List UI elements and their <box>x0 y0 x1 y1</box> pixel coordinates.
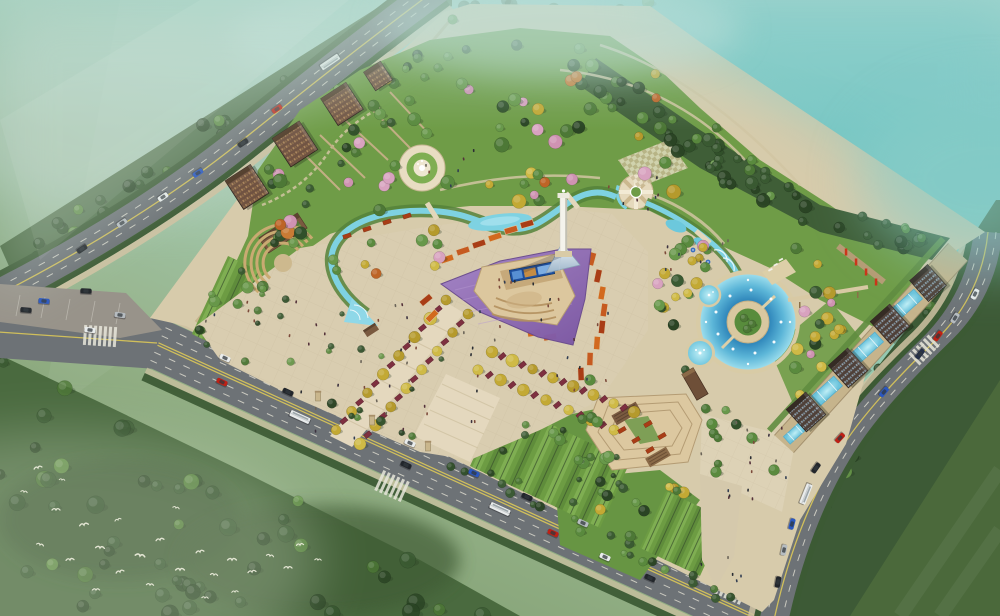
rendering-stage: Bird's-eye rendering of a large rectangu… <box>0 0 1000 616</box>
person <box>670 268 672 271</box>
person <box>586 378 588 381</box>
person <box>473 149 475 152</box>
person <box>377 319 379 322</box>
flower-bed <box>578 367 584 380</box>
person <box>415 346 417 349</box>
person <box>667 245 669 248</box>
person <box>474 420 476 423</box>
person <box>324 332 326 335</box>
person <box>700 260 702 263</box>
person <box>471 420 473 423</box>
person <box>750 456 752 459</box>
person <box>472 346 474 349</box>
person <box>752 497 754 500</box>
person <box>727 556 729 559</box>
person <box>740 574 742 577</box>
person <box>253 319 255 322</box>
person <box>476 389 478 392</box>
person <box>722 242 724 245</box>
flower-bed <box>594 336 601 349</box>
person <box>315 430 317 433</box>
person <box>308 342 310 345</box>
person <box>655 196 657 199</box>
person <box>425 164 427 167</box>
person <box>665 268 667 271</box>
car <box>80 288 92 295</box>
person <box>426 412 428 415</box>
person <box>214 313 216 316</box>
person <box>315 407 317 410</box>
person <box>656 176 658 179</box>
flower-bed <box>598 320 605 334</box>
person <box>727 489 729 492</box>
person <box>428 170 430 173</box>
car <box>38 298 51 305</box>
person <box>408 379 410 382</box>
person <box>751 470 753 473</box>
person <box>457 169 459 172</box>
person <box>607 312 609 315</box>
person <box>389 385 391 388</box>
person <box>785 476 787 479</box>
person <box>364 386 366 389</box>
person <box>514 280 516 283</box>
fountain-plaza <box>399 145 445 191</box>
south-pool <box>687 340 714 367</box>
person <box>498 278 500 281</box>
fountain-jet <box>419 165 425 171</box>
person <box>532 282 534 285</box>
person <box>781 427 783 430</box>
person <box>727 239 729 242</box>
person <box>354 437 356 440</box>
person <box>540 318 542 321</box>
person <box>547 304 549 307</box>
person <box>463 331 465 334</box>
car <box>20 307 33 314</box>
person <box>597 323 599 326</box>
park-aerial-rendering <box>0 0 1000 616</box>
person <box>424 405 426 408</box>
person <box>732 573 734 576</box>
flower-bed <box>587 352 593 365</box>
person <box>360 360 362 363</box>
